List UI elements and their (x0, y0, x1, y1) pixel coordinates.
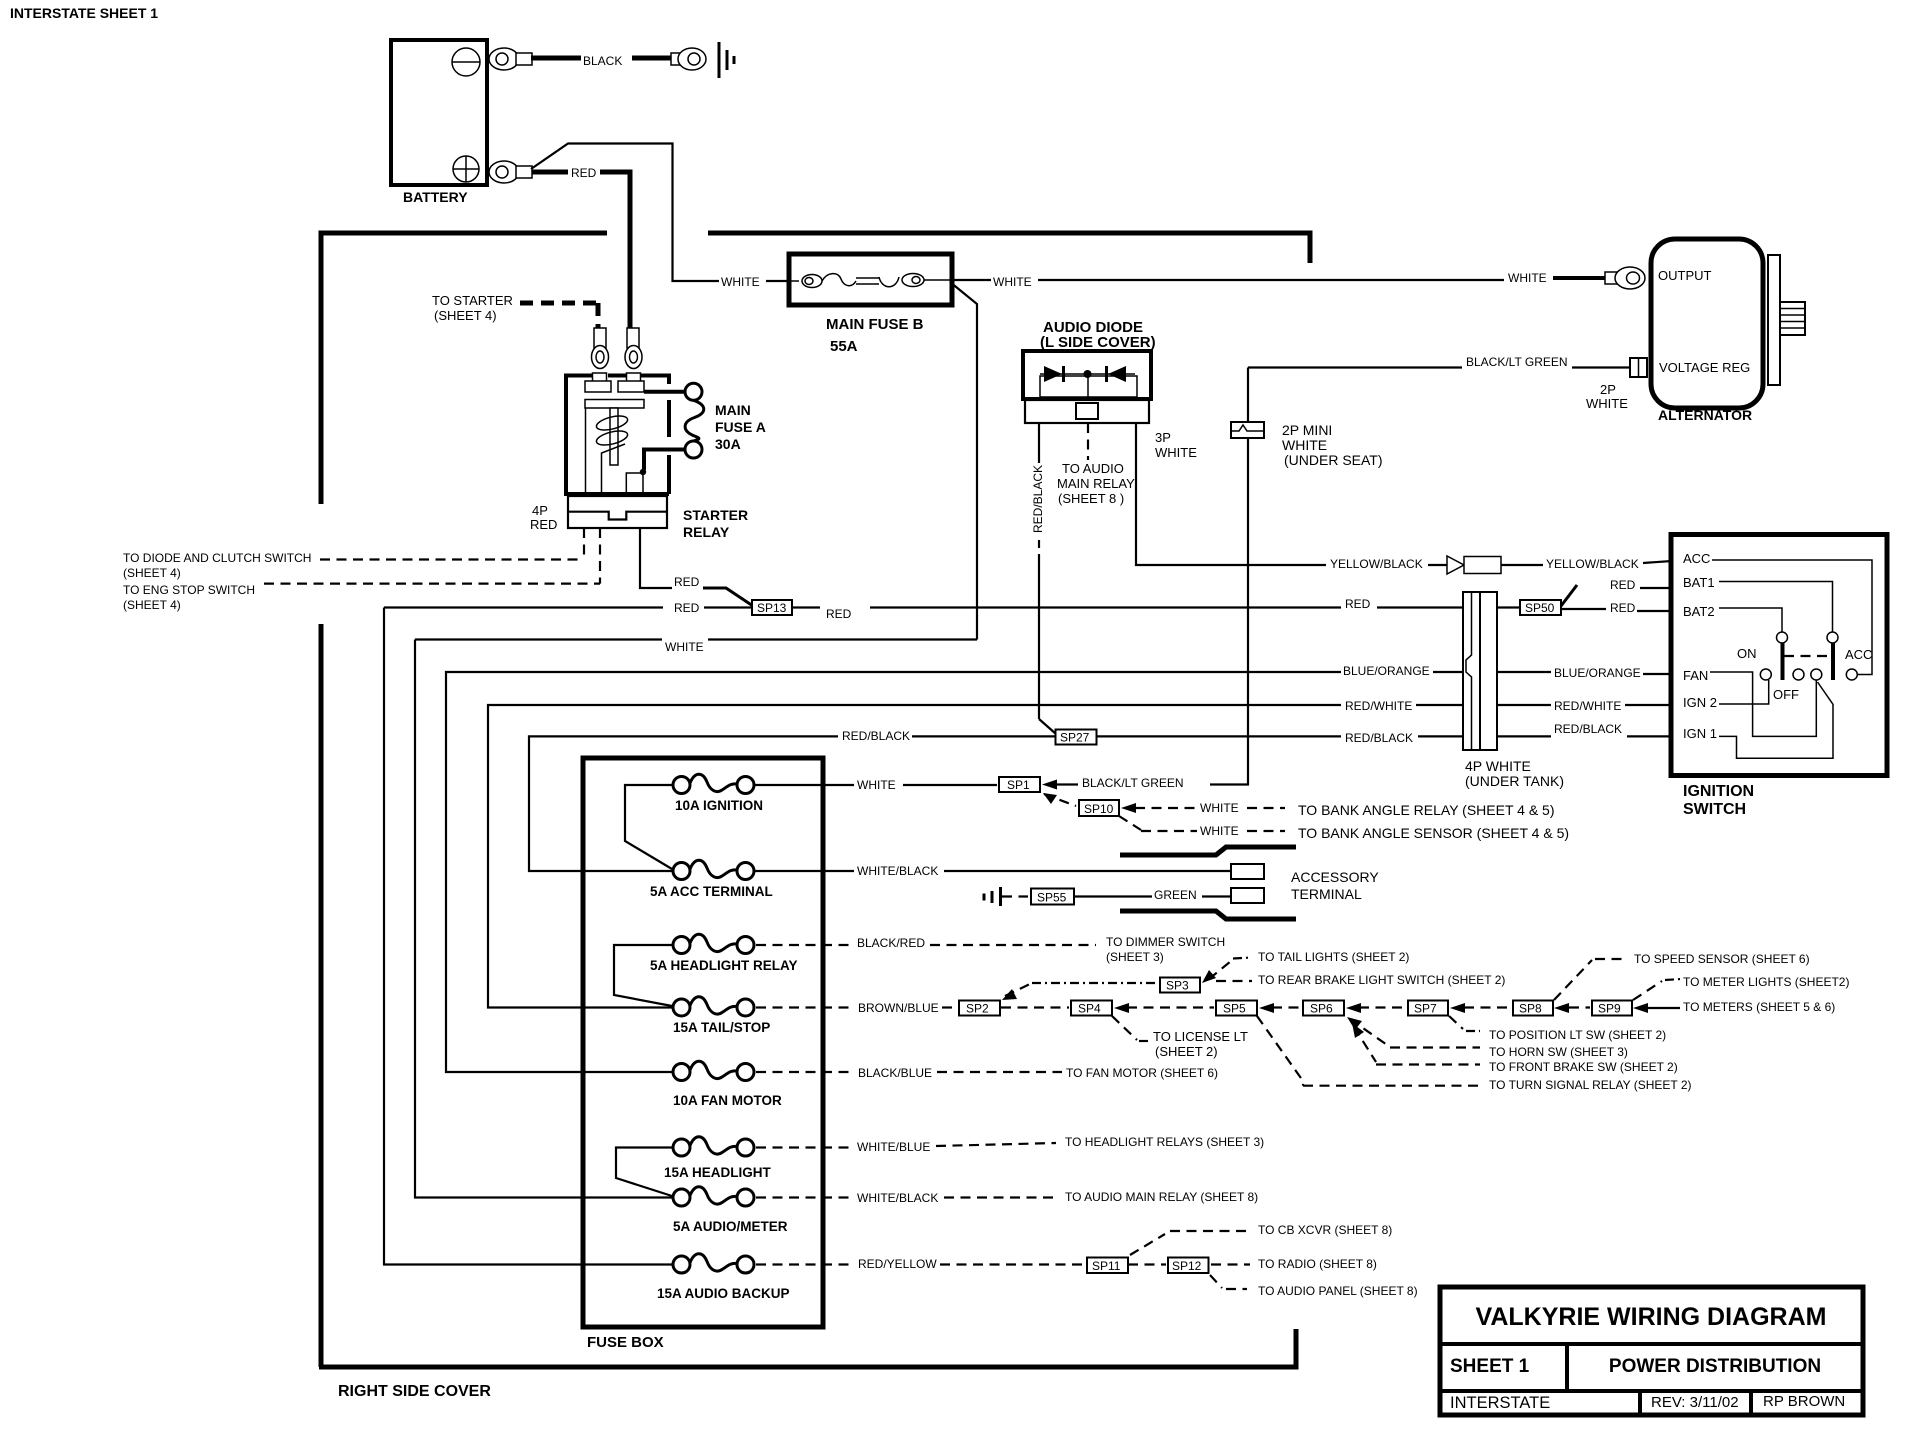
svg-text:ACC: ACC (1683, 551, 1710, 566)
svg-text:RED: RED (1345, 597, 1371, 611)
svg-text:TO BANK ANGLE SENSOR (SHEET 4: TO BANK ANGLE SENSOR (SHEET 4 & 5) (1298, 825, 1569, 841)
svg-text:TO STARTER: TO STARTER (432, 293, 513, 308)
svg-text:ON: ON (1737, 646, 1757, 661)
svg-text:TO FRONT BRAKE SW (SHEET 2): TO FRONT BRAKE SW (SHEET 2) (1489, 1060, 1678, 1074)
svg-text:ALTERNATOR: ALTERNATOR (1658, 407, 1752, 423)
svg-text:TO TURN SIGNAL RELAY (SHEET 2: TO TURN SIGNAL RELAY (SHEET 2) (1489, 1078, 1692, 1092)
svg-text:MAIN RELAY: MAIN RELAY (1057, 476, 1135, 491)
svg-text:BAT1: BAT1 (1683, 575, 1715, 590)
svg-text:(SHEET 3): (SHEET 3) (1106, 950, 1164, 964)
svg-text:(SHEET 4): (SHEET 4) (123, 566, 181, 580)
svg-text:YELLOW/BLACK: YELLOW/BLACK (1546, 557, 1639, 571)
svg-text:TO TAIL LIGHTS (SHEET 2): TO TAIL LIGHTS (SHEET 2) (1258, 950, 1409, 964)
svg-text:BLUE/ORANGE: BLUE/ORANGE (1554, 666, 1641, 680)
svg-text:IGN 1: IGN 1 (1683, 726, 1717, 741)
svg-text:SP6: SP6 (1310, 1002, 1333, 1016)
svg-text:BATTERY: BATTERY (403, 189, 468, 205)
svg-text:RED: RED (1610, 601, 1636, 615)
svg-text:SP1: SP1 (1007, 778, 1030, 792)
svg-text:RED: RED (571, 166, 597, 180)
svg-text:SP5: SP5 (1223, 1002, 1246, 1016)
svg-text:15A AUDIO BACKUP: 15A AUDIO BACKUP (657, 1286, 790, 1301)
svg-text:SP11: SP11 (1092, 1259, 1121, 1273)
svg-text:FUSE BOX: FUSE BOX (587, 1334, 664, 1351)
svg-text:TO BANK ANGLE RELAY (SHEET 4: TO BANK ANGLE RELAY (SHEET 4 & 5) (1298, 802, 1555, 818)
svg-text:BLACK: BLACK (583, 54, 622, 68)
svg-text:RELAY: RELAY (683, 524, 730, 540)
svg-text:BLUE/ORANGE: BLUE/ORANGE (1343, 664, 1430, 678)
svg-text:TO METER LIGHTS (SHEET2): TO METER LIGHTS (SHEET2) (1683, 975, 1849, 989)
svg-text:4P: 4P (532, 503, 548, 518)
svg-text:BLACK/LT GREEN: BLACK/LT GREEN (1466, 355, 1568, 369)
svg-text:BLACK/RED: BLACK/RED (857, 936, 925, 950)
svg-text:STARTER: STARTER (683, 507, 748, 523)
svg-text:15A TAIL/STOP: 15A TAIL/STOP (673, 1020, 770, 1035)
svg-text:55A: 55A (830, 338, 858, 355)
svg-text:TO REAR BRAKE LIGHT SWITCH (SH: TO REAR BRAKE LIGHT SWITCH (SHEET 2) (1258, 973, 1505, 987)
svg-text:WHITE/BLACK: WHITE/BLACK (857, 864, 938, 878)
svg-text:WHITE: WHITE (1200, 801, 1239, 815)
svg-text:RED: RED (826, 607, 852, 621)
svg-text:10A IGNITION: 10A IGNITION (675, 798, 763, 813)
svg-text:WHITE: WHITE (1155, 445, 1197, 460)
svg-text:SP12: SP12 (1172, 1259, 1202, 1273)
svg-text:SP10: SP10 (1084, 802, 1114, 816)
svg-text:IGNITION: IGNITION (1683, 783, 1754, 800)
svg-text:WHITE: WHITE (993, 275, 1032, 289)
svg-text:RED/WHITE: RED/WHITE (1554, 699, 1621, 713)
svg-text:ACC: ACC (1845, 647, 1872, 662)
svg-text:SP8: SP8 (1519, 1002, 1542, 1016)
svg-text:(SHEET 4): (SHEET 4) (123, 598, 181, 612)
svg-text:RED: RED (674, 601, 700, 615)
svg-text:BROWN/BLUE: BROWN/BLUE (858, 1001, 939, 1015)
svg-text:RP BROWN: RP BROWN (1763, 1393, 1845, 1410)
svg-text:BLACK/LT GREEN: BLACK/LT GREEN (1082, 776, 1184, 790)
svg-text:SP4: SP4 (1078, 1002, 1101, 1016)
svg-text:TO FAN MOTOR (SHEET 6): TO FAN MOTOR (SHEET 6) (1066, 1066, 1218, 1080)
svg-text:VOLTAGE REG: VOLTAGE REG (1659, 360, 1750, 375)
svg-text:TO SPEED SENSOR (SHEET 6): TO SPEED SENSOR (SHEET 6) (1634, 952, 1810, 966)
svg-text:3P: 3P (1155, 430, 1171, 445)
svg-text:BAT2: BAT2 (1683, 604, 1715, 619)
svg-text:REV: 3/11/02: REV: 3/11/02 (1651, 1394, 1739, 1411)
svg-text:RED/BLACK: RED/BLACK (1031, 465, 1045, 533)
svg-text:TO RADIO (SHEET 8): TO RADIO (SHEET 8) (1258, 1257, 1377, 1271)
svg-text:(SHEET 4): (SHEET 4) (434, 308, 497, 323)
svg-text:TO DIODE AND CLUTCH SWITCH: TO DIODE AND CLUTCH SWITCH (123, 551, 311, 565)
svg-text:TO ENG STOP SWITCH: TO ENG STOP SWITCH (123, 583, 255, 597)
svg-text:10A FAN MOTOR: 10A FAN MOTOR (673, 1093, 782, 1108)
svg-text:(SHEET 2): (SHEET 2) (1155, 1044, 1218, 1059)
svg-text:WHITE/BLUE: WHITE/BLUE (857, 1140, 930, 1154)
svg-text:OFF: OFF (1773, 687, 1799, 702)
svg-text:OUTPUT: OUTPUT (1658, 268, 1712, 283)
svg-text:2P MINI: 2P MINI (1282, 422, 1332, 438)
svg-text:RED: RED (674, 575, 700, 589)
svg-text:WHITE: WHITE (665, 640, 704, 654)
svg-text:SP55: SP55 (1037, 891, 1067, 905)
svg-text:WHITE: WHITE (1282, 437, 1327, 453)
svg-text:IGN 2: IGN 2 (1683, 695, 1717, 710)
svg-text:5A AUDIO/METER: 5A AUDIO/METER (673, 1219, 788, 1234)
svg-text:TO LICENSE LT: TO LICENSE LT (1153, 1029, 1248, 1044)
svg-text:5A ACC TERMINAL: 5A ACC TERMINAL (650, 884, 773, 899)
svg-text:TO POSITION LT SW (SHEET 2): TO POSITION LT SW (SHEET 2) (1489, 1028, 1666, 1042)
svg-text:INTERSTATE: INTERSTATE (1450, 1394, 1550, 1412)
svg-text:30A: 30A (715, 436, 741, 452)
svg-text:RIGHT SIDE COVER: RIGHT SIDE COVER (338, 1383, 491, 1400)
svg-text:2P: 2P (1600, 382, 1616, 397)
svg-text:TO HEADLIGHT RELAYS (SHEET 3): TO HEADLIGHT RELAYS (SHEET 3) (1065, 1135, 1264, 1149)
svg-text:TO CB XCVR (SHEET 8): TO CB XCVR (SHEET 8) (1258, 1223, 1392, 1237)
svg-text:(UNDER TANK): (UNDER TANK) (1465, 773, 1564, 789)
svg-text:TO AUDIO MAIN RELAY (SHEET 8): TO AUDIO MAIN RELAY (SHEET 8) (1065, 1190, 1258, 1204)
svg-text:TO AUDIO: TO AUDIO (1062, 461, 1124, 476)
svg-text:SP9: SP9 (1598, 1002, 1621, 1016)
svg-text:TO METERS (SHEET 5 & 6): TO METERS (SHEET 5 & 6) (1683, 1000, 1835, 1014)
svg-text:TO DIMMER SWITCH: TO DIMMER SWITCH (1106, 935, 1225, 949)
svg-text:(UNDER SEAT): (UNDER SEAT) (1284, 452, 1383, 468)
svg-text:15A HEADLIGHT: 15A HEADLIGHT (664, 1165, 772, 1180)
svg-text:WHITE/BLACK: WHITE/BLACK (857, 1191, 938, 1205)
svg-text:RED: RED (530, 517, 557, 532)
svg-text:POWER DISTRIBUTION: POWER DISTRIBUTION (1609, 1356, 1821, 1377)
svg-text:RED/YELLOW: RED/YELLOW (858, 1257, 937, 1271)
svg-text:WHITE: WHITE (721, 275, 760, 289)
svg-text:WHITE: WHITE (857, 778, 896, 792)
svg-text:YELLOW/BLACK: YELLOW/BLACK (1330, 557, 1423, 571)
svg-text:RED/WHITE: RED/WHITE (1345, 699, 1412, 713)
svg-text:(SHEET 8 ): (SHEET 8 ) (1058, 491, 1124, 506)
svg-text:SHEET 1: SHEET 1 (1450, 1356, 1530, 1377)
svg-text:SP27: SP27 (1060, 731, 1090, 745)
svg-text:BLACK/BLUE: BLACK/BLUE (858, 1066, 932, 1080)
svg-text:WHITE: WHITE (1508, 271, 1547, 285)
svg-text:RED/BLACK: RED/BLACK (842, 729, 910, 743)
svg-text:WHITE: WHITE (1200, 824, 1239, 838)
svg-text:SP7: SP7 (1414, 1002, 1437, 1016)
svg-text:5A HEADLIGHT RELAY: 5A HEADLIGHT RELAY (650, 958, 798, 973)
svg-text:GREEN: GREEN (1154, 888, 1197, 902)
svg-text:FAN: FAN (1683, 668, 1708, 683)
svg-text:VALKYRIE WIRING DIAGRAM: VALKYRIE WIRING DIAGRAM (1476, 1303, 1827, 1331)
svg-text:TO HORN SW (SHEET 3): TO HORN SW (SHEET 3) (1489, 1045, 1628, 1059)
svg-text:INTERSTATE SHEET 1: INTERSTATE SHEET 1 (10, 5, 158, 21)
svg-text:TERMINAL: TERMINAL (1291, 886, 1362, 902)
svg-text:SP13: SP13 (757, 601, 787, 615)
svg-text:TO AUDIO PANEL (SHEET 8): TO AUDIO PANEL (SHEET 8) (1258, 1284, 1418, 1298)
svg-text:SP2: SP2 (966, 1002, 989, 1016)
svg-text:ACCESSORY: ACCESSORY (1291, 869, 1379, 885)
svg-text:RED/BLACK: RED/BLACK (1554, 722, 1622, 736)
svg-text:(L SIDE COVER): (L SIDE COVER) (1040, 334, 1156, 351)
svg-text:RED/BLACK: RED/BLACK (1345, 731, 1413, 745)
svg-text:SP3: SP3 (1166, 979, 1189, 993)
svg-text:SP50: SP50 (1525, 601, 1555, 615)
svg-text:WHITE: WHITE (1586, 396, 1628, 411)
svg-text:RED: RED (1610, 578, 1636, 592)
svg-text:MAIN FUSE B: MAIN FUSE B (826, 316, 924, 333)
svg-text:4P WHITE: 4P WHITE (1465, 758, 1531, 774)
svg-text:MAIN: MAIN (715, 402, 751, 418)
svg-text:FUSE A: FUSE A (715, 419, 766, 435)
svg-text:SWITCH: SWITCH (1683, 801, 1746, 818)
